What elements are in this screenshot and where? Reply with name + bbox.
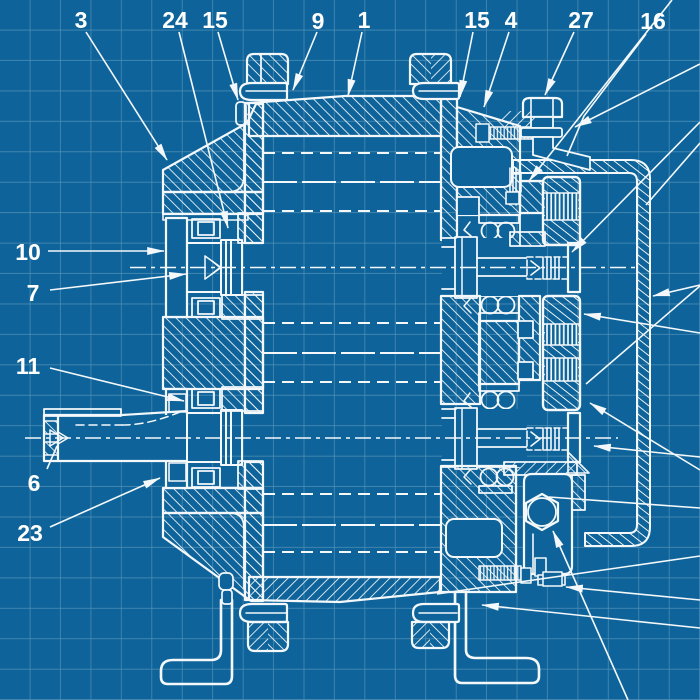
svg-text:1: 1 xyxy=(358,7,371,33)
svg-text:15: 15 xyxy=(202,7,228,33)
svg-text:27: 27 xyxy=(568,7,594,33)
svg-text:11: 11 xyxy=(16,353,41,379)
svg-text:16: 16 xyxy=(640,8,666,34)
svg-text:6: 6 xyxy=(28,470,41,496)
svg-text:4: 4 xyxy=(505,7,518,33)
svg-text:15: 15 xyxy=(464,7,490,33)
svg-text:10: 10 xyxy=(15,239,41,265)
svg-text:7: 7 xyxy=(27,280,40,306)
svg-text:24: 24 xyxy=(162,7,188,33)
svg-text:9: 9 xyxy=(312,8,325,34)
svg-text:3: 3 xyxy=(75,7,88,33)
svg-text:23: 23 xyxy=(17,520,43,546)
